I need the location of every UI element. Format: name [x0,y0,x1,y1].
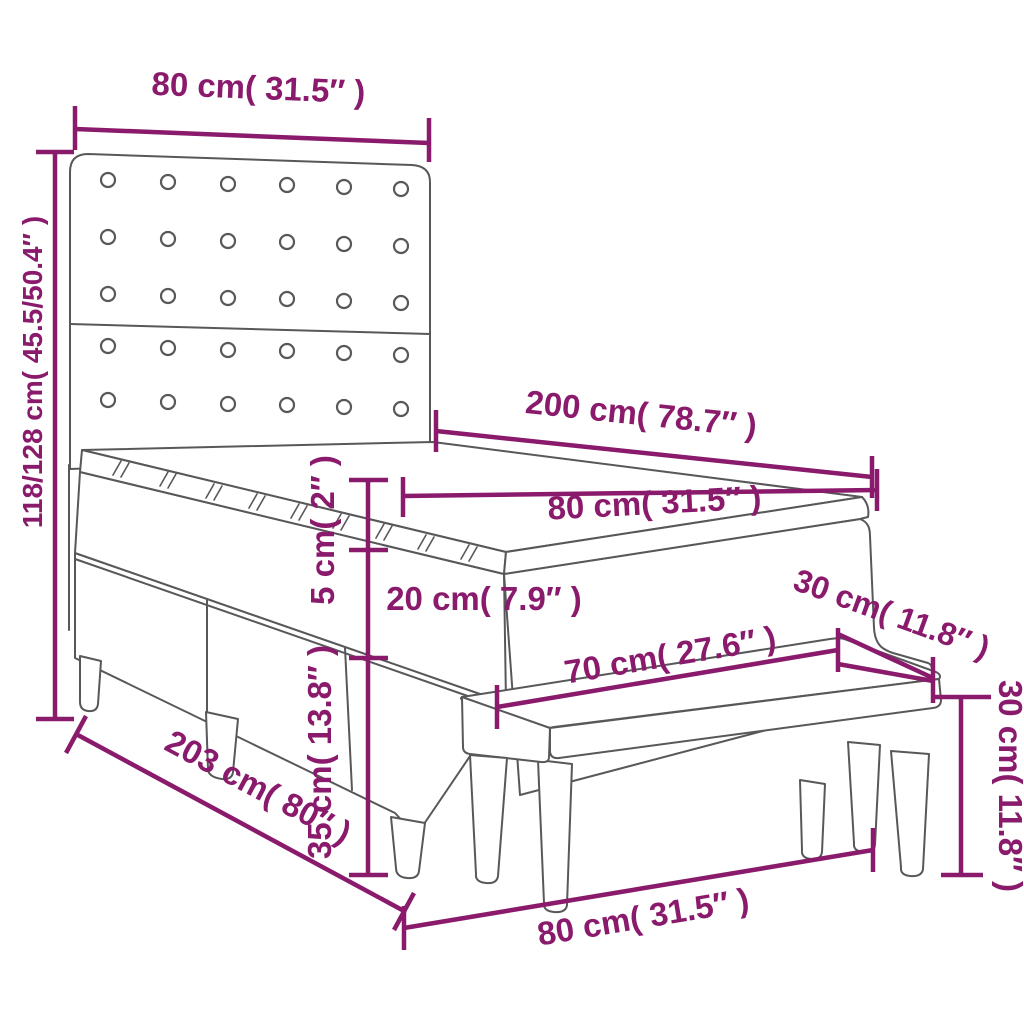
tufting-button [101,339,115,353]
dimension-diagram-page: 80 cm( 31.5″ ) 118/128 cm( 45.5/50.4″ ) … [0,0,1024,1024]
tufting-button [337,400,351,414]
tufting-button [221,343,235,357]
bed-leg [800,780,825,859]
tufting-button [394,402,408,416]
dimension-label-headboard-width: 80 cm( 31.5″ ) [151,65,366,111]
dimension-line [75,129,429,143]
tufting-button [337,346,351,360]
dimension-label-mattress-length: 200 cm( 78.7″ ) [524,383,759,444]
tufting-button [101,173,115,187]
tufting-button [161,395,175,409]
dimension-label-mattress-thickness: 20 cm( 7.9″ ) [386,580,582,617]
tufting-button [161,232,175,246]
tufting-button [394,239,408,253]
bench-leg-front-left [470,755,507,883]
tufting-button [394,348,408,362]
tufting-button [101,287,115,301]
dimension-bed-height: 118/128 cm( 45.5/50.4″ ) [17,152,74,719]
bench-leg-front-right [891,751,929,876]
tufting-button [221,397,235,411]
bench-leg-back-left [538,760,572,912]
tufting-button [337,294,351,308]
dimension-label-topper-thickness: 5 cm( 2″ ) [304,455,341,605]
dimension-label-bed-height: 118/128 cm( 45.5/50.4″ ) [17,216,48,528]
dimension-headboard-width: 80 cm( 31.5″ ) [75,65,429,162]
tufting-button [280,344,294,358]
bed-leg [391,817,425,878]
tufting-button [280,292,294,306]
tufting-button [221,291,235,305]
tufting-button [394,296,408,310]
bed-dimension-diagram: 80 cm( 31.5″ ) 118/128 cm( 45.5/50.4″ ) … [0,0,1024,1024]
dimension-label-bench-height: 30 cm( 11.8″ ) [992,680,1024,892]
tufting-button [280,235,294,249]
tufting-button [161,289,175,303]
tufting-button [101,393,115,407]
tufting-button [101,230,115,244]
dimension-bench-height: 30 cm( 11.8″ ) [934,680,1024,892]
tufting-button [221,177,235,191]
tufting-button [280,178,294,192]
tufting-button [280,398,294,412]
tufting-button [394,182,408,196]
tufting-button [337,180,351,194]
tufting-button [161,175,175,189]
tufting-button [221,234,235,248]
headboard-panel [70,154,430,469]
tufting-button [161,341,175,355]
tufting-button [337,237,351,251]
bed-leg [80,656,101,711]
